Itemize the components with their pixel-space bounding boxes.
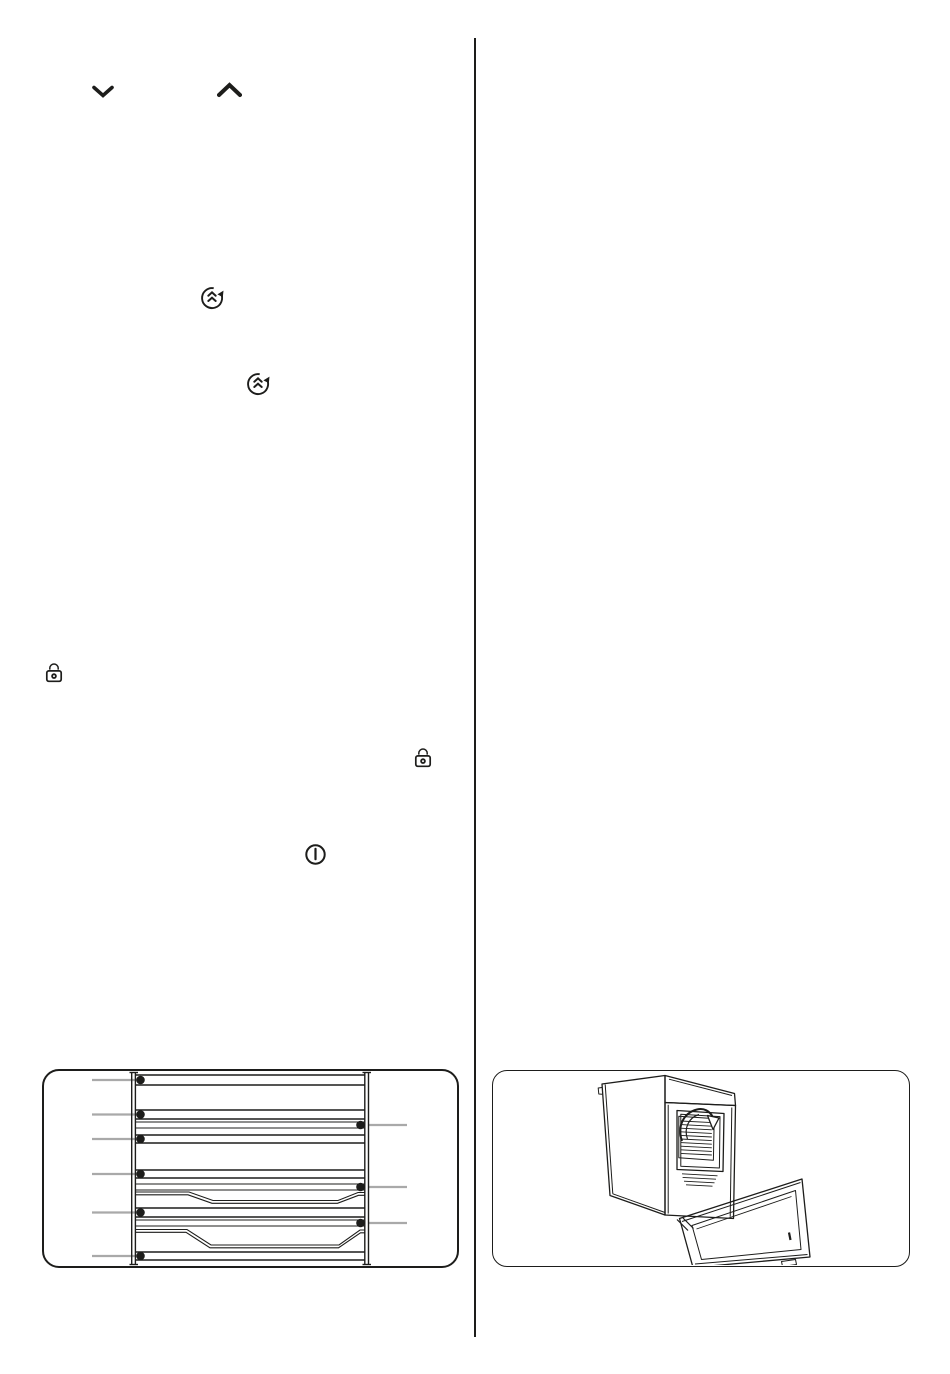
shelf-rails bbox=[130, 1073, 372, 1265]
oven-line-art bbox=[598, 1076, 810, 1266]
oven-open-door-illustration bbox=[492, 1070, 910, 1267]
column-divider bbox=[474, 38, 476, 1337]
runner-levels bbox=[135, 1122, 364, 1226]
fast-heat-up-icon bbox=[199, 284, 227, 312]
lock-icon bbox=[45, 661, 63, 683]
shelf-diagram-drawing bbox=[44, 1071, 457, 1266]
oven-drawing bbox=[493, 1071, 908, 1265]
power-icon bbox=[304, 843, 327, 866]
rear-panel-slats bbox=[681, 1121, 712, 1155]
oven-shelf-positions-diagram bbox=[42, 1069, 459, 1268]
cavity-floor-lines bbox=[682, 1174, 718, 1186]
manual-page: { "palette": { "ink": "#1d1d1b", "leader… bbox=[0, 0, 950, 1374]
fast-heat-up-icon bbox=[245, 370, 273, 398]
chevron-up-icon bbox=[217, 82, 242, 98]
chevron-down-icon bbox=[92, 85, 114, 98]
baking-tray-profile bbox=[135, 1230, 364, 1248]
wire-shelf-profile bbox=[135, 1192, 364, 1203]
right-callout-leaders bbox=[368, 1125, 407, 1223]
lock-icon bbox=[414, 746, 432, 768]
